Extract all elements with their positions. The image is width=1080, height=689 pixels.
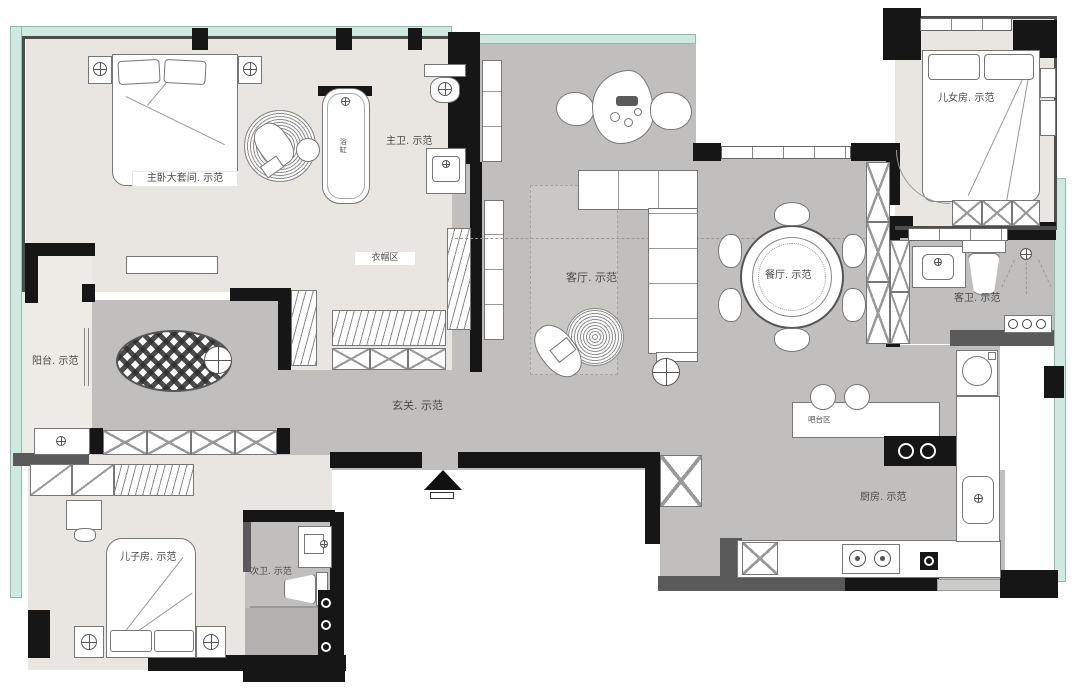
decor-rock-icon <box>556 92 594 126</box>
balcony-rail-line <box>84 328 89 386</box>
faucet-icon <box>442 160 450 168</box>
washer-panel-icon <box>988 352 996 360</box>
tv-console-icon <box>126 256 218 274</box>
desk-chair-icon <box>74 528 96 542</box>
lamp-icon <box>203 634 219 650</box>
faucet-icon <box>974 494 983 503</box>
knob-icon <box>321 620 331 630</box>
storage-box-icon <box>370 348 408 370</box>
rug-end-table-icon <box>204 346 232 374</box>
window-sill-box <box>235 430 277 455</box>
toilet-tank-icon <box>962 240 1006 253</box>
entry-threshold-icon <box>430 492 454 499</box>
dining-cabinet-icon <box>866 162 890 222</box>
wall-segment <box>937 579 1001 591</box>
room-label-guest-bath: 客卫. 示范 <box>954 293 1000 305</box>
dining-chair-icon <box>842 288 866 322</box>
wall-segment <box>883 8 921 60</box>
knob-icon <box>1008 319 1018 329</box>
room-label-hallway: 玄关. 示范 <box>392 399 443 412</box>
knob-icon <box>321 598 331 608</box>
toilet-tank-icon <box>424 64 466 77</box>
wall-segment <box>1044 366 1064 398</box>
lamp-icon <box>243 62 257 76</box>
duct-shaft-icon <box>890 240 910 292</box>
dresser-icon <box>982 200 1012 226</box>
window-sill-box <box>191 430 235 455</box>
storage-box-icon <box>742 542 778 575</box>
side-table-icon <box>652 358 680 386</box>
side-table-icon <box>296 138 320 162</box>
room-label-balcony: 阳台. 示范 <box>32 356 78 368</box>
pillow-icon <box>163 59 206 85</box>
window-strip-dining-top <box>721 146 851 159</box>
wall-segment-hall-south-left <box>330 452 422 468</box>
wall-segment <box>88 428 103 454</box>
tv-cabinet-column-icon <box>484 200 504 340</box>
island-basin-icon <box>920 443 936 459</box>
dining-chair-icon <box>842 234 866 268</box>
wall-line <box>22 36 452 39</box>
room-label-daughter: 儿女房. 示范 <box>938 93 994 105</box>
sofa-back-icon <box>578 170 698 210</box>
shower-head-icon <box>1020 248 1032 260</box>
toilet-flush-icon <box>438 82 452 96</box>
wall-segment <box>1000 570 1058 598</box>
burner-icon <box>874 550 891 567</box>
wall-segment <box>82 284 95 302</box>
dresser-icon <box>952 200 982 226</box>
wall-segment <box>658 576 846 591</box>
room-label-son: 儿子房. 示范 <box>120 552 176 564</box>
shoe-cabinet-icon <box>660 455 702 507</box>
washer-drum-icon <box>962 356 992 386</box>
storage-box-icon <box>408 348 446 370</box>
hall-cabinet-icon <box>482 60 502 162</box>
wall-segment <box>243 668 345 682</box>
decor-pebble-icon <box>624 118 633 127</box>
entry-arrow-icon <box>424 470 462 490</box>
dining-chair-icon <box>718 288 742 322</box>
wardrobe-icon <box>332 310 446 346</box>
wardrobe-icon <box>114 464 194 496</box>
lamp-icon <box>81 634 97 650</box>
area-label-cloakroom: 衣帽区 <box>354 251 416 266</box>
room-label-master-bedroom: 主卧大套间. 示范 <box>132 171 238 187</box>
room-label-living: 客厅. 示范 <box>566 271 617 284</box>
room-label-second-bath: 次卫. 示范 <box>250 567 292 578</box>
knob-icon <box>321 642 331 652</box>
bedside-cabinet-icon <box>1040 68 1056 98</box>
fixture-label-bathtub: 浴缸 <box>339 138 347 154</box>
faucet-icon <box>320 540 328 548</box>
wardrobe-icon <box>447 228 471 330</box>
decor-rock-icon <box>592 70 654 144</box>
wall-segment <box>28 610 50 658</box>
window-band-living-top <box>452 34 696 44</box>
shower-spray-line <box>1026 262 1027 294</box>
window-sill-box <box>103 430 147 455</box>
pillow-icon <box>110 630 152 652</box>
dining-chair-icon <box>718 234 742 268</box>
wall-segment <box>336 28 352 50</box>
bar-stool-icon <box>810 384 836 410</box>
room-label-kitchen: 厨房. 示范 <box>860 492 906 504</box>
floor-plan-canvas: 主卧大套间. 示范 主卫. 示范 浴缸 衣帽区 阳台. 示范 玄关. 示范 客厅… <box>0 0 1080 689</box>
decor-pebble-icon <box>610 112 620 122</box>
wall-segment <box>693 143 721 161</box>
wall-segment <box>230 288 280 301</box>
bar-stool-icon <box>844 384 870 410</box>
wall-segment <box>243 522 251 572</box>
wardrobe-icon <box>30 464 72 496</box>
dining-cabinet-icon <box>866 222 890 282</box>
wardrobe-icon <box>72 464 114 496</box>
sofa-chaise-icon <box>648 208 698 354</box>
knob-icon <box>1036 319 1046 329</box>
bedside-cabinet-icon <box>1040 100 1056 136</box>
decor-rock-icon <box>650 92 692 130</box>
storage-box-icon <box>332 348 370 370</box>
wall-segment <box>192 28 208 50</box>
dining-cabinet-icon <box>866 282 890 344</box>
hob-ring-icon <box>924 556 934 566</box>
lamp-icon <box>93 62 107 76</box>
dresser-icon <box>1012 200 1040 226</box>
wall-segment-hall-south-right <box>458 452 646 468</box>
burner-icon <box>849 550 866 567</box>
wall-segment <box>645 452 660 544</box>
window-sill-box <box>147 430 191 455</box>
wall-segment <box>278 288 291 370</box>
wall-segment <box>277 428 290 454</box>
area-label-bar: 吧台区 <box>808 415 831 424</box>
decor-pebble-icon <box>634 108 642 116</box>
pillow-icon <box>984 54 1034 80</box>
decor-plaque-icon <box>616 96 638 106</box>
wall-segment <box>25 243 38 303</box>
window-strip-daughter-top <box>920 18 1012 31</box>
wall-segment <box>845 578 939 591</box>
window-band-left <box>10 26 22 598</box>
wardrobe-icon <box>291 290 317 366</box>
island-basin-icon <box>898 443 914 459</box>
dining-chair-icon <box>774 328 810 352</box>
pillow-icon <box>928 54 980 80</box>
faucet-icon <box>934 258 942 266</box>
knob-icon <box>1022 319 1032 329</box>
room-label-dining: 餐厅. 示范 <box>765 270 811 282</box>
pillow-icon <box>154 630 194 652</box>
wall-segment <box>408 28 422 50</box>
duct-shaft-icon <box>890 292 910 344</box>
wall-segment <box>243 510 335 522</box>
pillow-icon <box>117 59 160 85</box>
faucet-icon <box>341 97 350 106</box>
wall-segment <box>470 162 482 372</box>
wall-segment <box>851 143 889 161</box>
faucet-icon <box>56 436 66 446</box>
room-label-master-bath: 主卫. 示范 <box>386 136 432 148</box>
dining-chair-icon <box>774 202 810 226</box>
desk-icon <box>66 500 102 530</box>
